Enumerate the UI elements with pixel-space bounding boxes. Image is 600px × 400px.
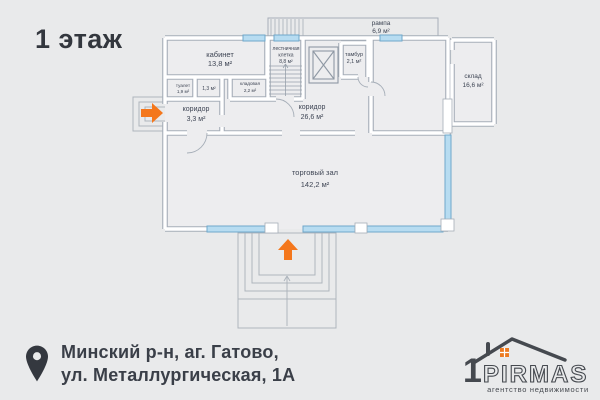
address-line-2: ул. Металлургическая, 1А xyxy=(61,364,295,387)
room-label-corridor-main: коридор xyxy=(299,104,326,111)
location-pin-icon xyxy=(26,345,48,383)
logo-tagline: агентство недвижимости xyxy=(487,385,589,394)
room-area-office: 13,8 м² xyxy=(208,59,233,68)
room-label-office: кабинет xyxy=(206,50,234,59)
room-area-utility: 1,3 м² xyxy=(202,86,216,92)
window-bottom-1 xyxy=(207,226,265,232)
room-label-vestibule: тамбур xyxy=(345,52,363,58)
window-right xyxy=(445,135,451,223)
room-area-corridor-small: 3,3 м² xyxy=(187,116,206,123)
room-label-stairwell-2: клетка xyxy=(278,53,293,59)
room-label-warehouse: склад xyxy=(464,73,482,80)
room-area-toilet: 1,9 м² xyxy=(177,89,190,94)
window-bottom-3 xyxy=(367,226,443,232)
entrance-arrow-left xyxy=(141,103,163,123)
window-top-2 xyxy=(274,35,299,41)
agency-logo-graphic: 1 PIRMAS агентство недвижимости xyxy=(450,330,595,398)
logo-brand: PIRMAS xyxy=(483,361,588,388)
room-label-storage: кладовая xyxy=(240,81,260,86)
room-area-storage: 2,2 м² xyxy=(244,88,257,93)
room-area-sales-hall: 142,2 м² xyxy=(301,180,330,189)
entrance-arrow-bottom xyxy=(278,239,298,260)
room-area-warehouse: 16,6 м² xyxy=(462,82,484,89)
room-label-corridor-small: коридор xyxy=(183,106,210,113)
window-top-3 xyxy=(380,35,402,41)
window-bottom-2 xyxy=(303,226,355,232)
real-estate-floorplan-card: 1 этаж xyxy=(0,0,600,400)
room-area-stairwell: 8,8 м² xyxy=(279,59,293,65)
room-area-corridor-main: 26,6 м² xyxy=(301,114,324,121)
room-label-sales-hall: торговый зал xyxy=(292,168,338,177)
room-area-vestibule: 2,1 м² xyxy=(347,59,362,65)
room-label-ramp: рампа xyxy=(372,20,391,27)
address-block: Минский р-н, аг. Гатово, ул. Металлургич… xyxy=(26,341,295,387)
ramp-area xyxy=(268,18,438,36)
room-area-ramp: 6,9 м² xyxy=(372,28,390,35)
room-label-toilet: туалет xyxy=(176,83,191,88)
window-top-1 xyxy=(243,35,265,41)
agency-logo: 1 PIRMAS агентство недвижимости xyxy=(450,330,595,400)
logo-digit: 1 xyxy=(463,352,482,390)
ramp-hatch xyxy=(271,19,303,36)
address-line-1: Минский р-н, аг. Гатово, xyxy=(61,341,295,364)
logo-window-icon xyxy=(500,348,509,357)
floor-plan: кабинет 13,8 м² лестничная клетка 8,8 м²… xyxy=(0,0,600,340)
room-label-stairwell-1: лестничная xyxy=(273,46,300,52)
